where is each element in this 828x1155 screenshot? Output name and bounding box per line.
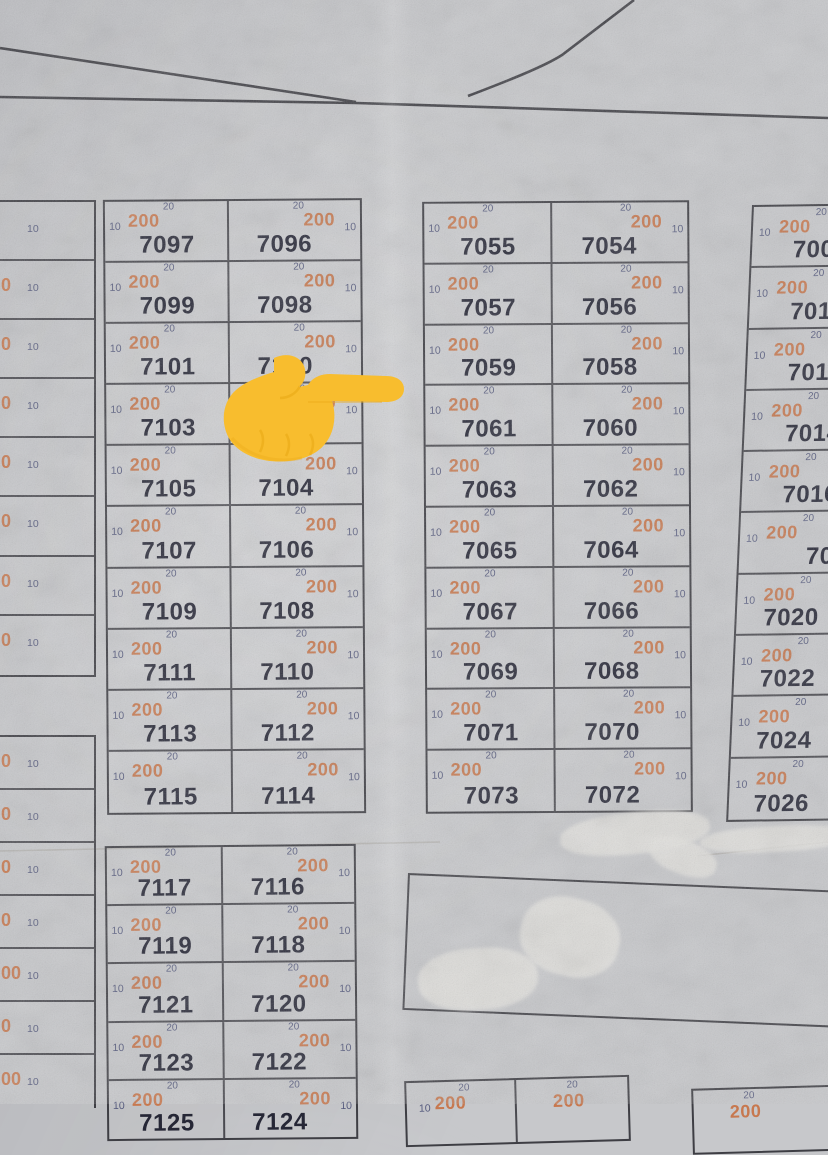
- frontage-label: 10: [112, 587, 124, 599]
- area-label: 200: [303, 209, 335, 230]
- area-label: 200: [632, 515, 664, 536]
- plot-row: 2020010706920200107068: [427, 628, 690, 690]
- plot-cell: 20200107103: [106, 384, 229, 444]
- frontage-label: 10: [111, 526, 123, 538]
- area-label: 200: [634, 759, 666, 780]
- area-label-partial: 0: [1, 275, 11, 296]
- frontage-label: 10: [429, 405, 441, 417]
- plot-cell: 20200107054: [550, 202, 687, 262]
- plot-number: 7120: [251, 990, 307, 1018]
- depth-label: 20: [622, 567, 633, 578]
- plot-row: 2020010711320200107112: [108, 689, 363, 752]
- plot-cell: 20200107117: [107, 847, 221, 904]
- area-label-partial: 00: [1, 963, 21, 984]
- area-label: 200: [632, 394, 664, 415]
- plot-block-bottom-center-partial: 202001020200: [404, 1075, 631, 1147]
- area-label-partial: 0: [1, 857, 11, 878]
- depth-label: 20: [294, 323, 305, 334]
- plot-number: 7059: [461, 355, 517, 383]
- frontage-label: 10: [27, 917, 39, 929]
- partial-plot-row: 010: [0, 261, 94, 320]
- plot-row: 2020010706120200107060: [425, 385, 688, 447]
- frontage-label: 10: [27, 1023, 39, 1035]
- area-label-partial: 0: [1, 630, 11, 651]
- area-label: 200: [304, 270, 336, 291]
- plot-number: 7065: [462, 537, 518, 565]
- plot-number: 7016: [782, 481, 828, 510]
- plot-row: 2020010705720200107056: [425, 263, 688, 325]
- depth-label: 20: [288, 963, 299, 974]
- plot-row: 2020010710720200107106: [107, 506, 362, 569]
- frontage-label: 10: [746, 533, 758, 545]
- plot-row: 2020010710320200107102: [106, 383, 361, 446]
- plot-block-lower-left: 2020010711720200107116202001071192020010…: [105, 844, 359, 1141]
- frontage-label: 10: [112, 983, 124, 995]
- frontage-label: 10: [27, 400, 39, 412]
- area-label: 200: [132, 1089, 164, 1110]
- frontage-label: 10: [743, 594, 755, 606]
- plot-row: 20200107016: [741, 450, 828, 513]
- frontage-label: 10: [428, 223, 440, 235]
- frontage-label: 10: [672, 345, 684, 357]
- plot-row: 20200107018: [738, 512, 828, 575]
- paper-tear: [699, 822, 828, 856]
- area-label: 200: [131, 699, 163, 720]
- area-label: 200: [129, 394, 161, 415]
- frontage-label: 10: [753, 349, 765, 361]
- frontage-label: 10: [27, 637, 39, 649]
- frontage-label: 10: [348, 710, 360, 722]
- partial-plot-row: 010: [0, 843, 94, 896]
- area-label-partial: 00: [1, 1069, 21, 1090]
- plot-number: 7018: [805, 542, 828, 571]
- area-label-partial: 0: [1, 1016, 11, 1037]
- area-label: 200: [766, 523, 798, 544]
- plat-map-photo: 10010010010010010010010 0100100100100010…: [0, 0, 828, 1104]
- plot-cell: 20200107106: [229, 506, 362, 566]
- plot-cell: 20200107020: [736, 573, 828, 634]
- area-label: 200: [634, 698, 666, 719]
- frontage-label: 10: [345, 282, 357, 294]
- frontage-label: 10: [111, 465, 123, 477]
- plot-strip-left-lower: 01001001001000100100010: [0, 735, 96, 1108]
- plot-row: 2020010711520200107114: [109, 750, 364, 813]
- frontage-label: 10: [110, 343, 122, 355]
- plot-cell: 20200107114: [231, 750, 364, 812]
- depth-label: 20: [294, 445, 305, 456]
- plot-cell: 20200107116: [220, 846, 354, 903]
- depth-label: 20: [297, 750, 308, 761]
- area-label: 200: [776, 277, 808, 298]
- plot-cell: 20200107098: [228, 261, 361, 321]
- frontage-label: 10: [111, 925, 123, 937]
- plot-row: 2020010707120200107070: [427, 689, 690, 751]
- plot-number: 7099: [140, 292, 196, 320]
- plot-number: 7071: [463, 719, 519, 747]
- plot-cell: 20200107018: [739, 512, 828, 573]
- plot-cell: 20200107026: [728, 757, 828, 820]
- frontage-label: 10: [674, 649, 686, 661]
- partial-plot-row: 010: [0, 557, 94, 616]
- plot-number: 7116: [251, 874, 305, 902]
- frontage-label: 10: [672, 223, 684, 235]
- depth-label: 20: [482, 203, 493, 214]
- area-label: 200: [128, 211, 160, 232]
- plot-cell: 20200107115: [109, 751, 232, 813]
- frontage-label: 10: [741, 656, 753, 668]
- depth-label: 20: [293, 201, 304, 212]
- depth-label: 20: [623, 689, 634, 700]
- depth-label: 20: [166, 690, 177, 701]
- plot-cell: 20200107069: [427, 629, 554, 689]
- frontage-label: 10: [429, 284, 441, 296]
- road-line-horizontal: [0, 97, 828, 118]
- plot-number: 7124: [252, 1108, 308, 1136]
- plot-number: 7060: [583, 415, 639, 443]
- frontage-label: 10: [430, 587, 442, 599]
- plot-cell: 20200107100: [228, 322, 361, 382]
- depth-label: 20: [485, 690, 496, 701]
- depth-label: 20: [483, 325, 494, 336]
- area-label: 200: [131, 638, 163, 659]
- plot-row: 2020010709720200107096: [105, 200, 360, 263]
- plot-cell: 20200107062: [552, 445, 689, 505]
- plot-number: 7109: [142, 598, 198, 626]
- plot-number: 7110: [260, 658, 314, 686]
- area-label: 200: [304, 331, 336, 352]
- plot-cell: 20200107012: [746, 328, 828, 389]
- plot-strip-left-upper: 10010010010010010010010: [0, 200, 96, 677]
- frontage-label: 10: [675, 710, 687, 722]
- frontage-label: 10: [348, 771, 360, 783]
- depth-label: 20: [484, 568, 495, 579]
- plot-number: 7022: [759, 665, 816, 694]
- plot-number: 7024: [756, 726, 813, 755]
- frontage-label: 10: [340, 1100, 352, 1112]
- frontage-label: 10: [110, 404, 122, 416]
- area-label: 200: [307, 698, 339, 719]
- depth-label: 20: [810, 330, 822, 341]
- depth-label: 20: [287, 846, 298, 857]
- plot-number: 7114: [261, 782, 315, 810]
- area-label: 200: [434, 1092, 466, 1114]
- depth-label: 20: [165, 847, 176, 858]
- plot-cell: 20200107056: [551, 263, 688, 323]
- depth-label: 20: [167, 751, 178, 762]
- plot-cell: 20200107067: [426, 568, 553, 628]
- plot-row: 20200107008: [751, 205, 828, 268]
- plot-cell: 20200107097: [105, 201, 228, 261]
- plot-number: 7061: [461, 415, 517, 443]
- plot-cell: 20200107123: [108, 1022, 222, 1079]
- plot-number: 7070: [584, 719, 640, 747]
- plot-number: 7062: [583, 475, 639, 503]
- frontage-label: 10: [27, 282, 39, 294]
- plot-number: 7072: [585, 781, 641, 809]
- depth-label: 20: [808, 391, 820, 402]
- area-label: 200: [449, 577, 481, 598]
- depth-label: 20: [294, 384, 305, 395]
- plot-cell: 20200107010: [749, 266, 828, 327]
- plot-row: 2020010706520200107064: [426, 506, 689, 568]
- depth-label: 20: [295, 506, 306, 517]
- plot-row: 2020010710120200107100: [106, 322, 361, 385]
- plot-row: 2020010712320200107122: [108, 1020, 355, 1080]
- plot-number: 7111: [143, 659, 196, 687]
- plot-number: 7073: [464, 782, 520, 810]
- plot-cell: 2020010: [406, 1080, 516, 1145]
- plot-block-right-edge: 2020010700820200107010202001070122020010…: [726, 203, 828, 822]
- depth-label: 20: [163, 263, 174, 274]
- frontage-label: 10: [27, 970, 39, 982]
- frontage-label: 10: [338, 867, 350, 879]
- frontage-label: 10: [112, 710, 124, 722]
- plot-number: 7105: [141, 476, 197, 504]
- depth-label: 20: [797, 636, 809, 647]
- frontage-label: 10: [339, 983, 351, 995]
- depth-label: 20: [484, 447, 495, 458]
- plot-row: 2020010710520200107104: [107, 444, 362, 507]
- depth-label: 20: [165, 446, 176, 457]
- plot-cell: 20200107124: [222, 1079, 356, 1138]
- depth-label: 20: [621, 385, 632, 396]
- frontage-label: 10: [27, 223, 39, 235]
- depth-label: 20: [620, 203, 631, 214]
- frontage-label: 10: [419, 1102, 431, 1114]
- area-label: 200: [450, 699, 482, 720]
- plot-row: 2020010707320200107072: [427, 749, 690, 811]
- plot-number: 7125: [139, 1109, 195, 1137]
- plot-row: 20200107014: [744, 389, 828, 452]
- plot-cell: 20200107014: [744, 389, 828, 450]
- frontage-label: 10: [27, 811, 39, 823]
- plot-block-left: 2020010709720200107096202001070992020010…: [103, 198, 366, 815]
- plot-number: 7010: [790, 297, 828, 326]
- area-label: 200: [773, 339, 805, 360]
- depth-label: 20: [289, 1079, 300, 1090]
- partial-plot-row: 010: [0, 790, 94, 843]
- plot-cell: 20200107109: [107, 568, 230, 628]
- area-label: 200: [130, 577, 162, 598]
- plot-number: 7012: [787, 359, 828, 388]
- frontage-label: 10: [675, 770, 687, 782]
- frontage-label: 10: [431, 709, 443, 721]
- plot-cell: 20200: [693, 1088, 789, 1153]
- plot-number: 7118: [251, 932, 305, 960]
- depth-label: 20: [164, 324, 175, 335]
- depth-label: 20: [803, 513, 815, 524]
- plot-cell: 20200107102: [229, 383, 362, 443]
- plot-row: 2020010711720200107116: [107, 846, 354, 906]
- partial-plot-row: 10: [0, 202, 94, 261]
- area-label-partial: 0: [1, 511, 11, 532]
- plot-block-center: 2020010705520200107054202001070572020010…: [422, 200, 693, 814]
- plot-cell: 20200: [514, 1077, 628, 1142]
- frontage-label: 10: [346, 527, 358, 539]
- partial-plot-row: 010: [0, 497, 94, 556]
- plot-cell: 20200107055: [424, 203, 551, 263]
- area-label: 200: [632, 455, 664, 476]
- plot-block-bottom-right-partial: 20200: [691, 1083, 828, 1155]
- plot-cell: 20200107065: [426, 507, 553, 567]
- depth-label: 20: [166, 629, 177, 640]
- plot-number: 7101: [140, 354, 196, 382]
- depth-label: 20: [483, 386, 494, 397]
- depth-label: 20: [743, 1090, 754, 1101]
- plot-row: 2020010711920200107118: [107, 904, 354, 964]
- depth-label: 20: [566, 1079, 571, 1090]
- plot-cell: 20200107096: [227, 200, 360, 260]
- plot-cell: 20200107063: [426, 446, 553, 506]
- area-label: 200: [449, 516, 481, 537]
- area-label-partial: 0: [1, 910, 11, 931]
- frontage-label: 10: [111, 867, 123, 879]
- plot-number: 7106: [259, 536, 315, 564]
- frontage-label: 10: [429, 344, 441, 356]
- depth-label: 20: [623, 628, 634, 639]
- depth-label: 20: [295, 567, 306, 578]
- area-label: 200: [305, 393, 337, 414]
- depth-label: 20: [622, 507, 633, 518]
- partial-plot-row: 0010: [0, 949, 94, 1002]
- depth-label: 20: [485, 629, 496, 640]
- partial-plot-row: 010: [0, 737, 94, 790]
- partial-plot-row: 010: [0, 616, 94, 675]
- area-label: 200: [451, 760, 483, 781]
- plot-cell: 20200107120: [221, 962, 355, 1019]
- depth-label: 20: [623, 750, 634, 761]
- plot-cell: 20200107104: [229, 444, 362, 504]
- plot-row: 202001020200: [406, 1077, 629, 1145]
- frontage-label: 10: [735, 778, 747, 790]
- plot-cell: 20200107073: [427, 750, 554, 812]
- plot-number: 7058: [582, 354, 638, 382]
- plot-cell: 20200107022: [733, 634, 828, 695]
- area-label: 200: [130, 516, 162, 537]
- plot-cell: 20200107060: [551, 385, 688, 445]
- plot-number: 7097: [139, 231, 195, 259]
- depth-label: 20: [167, 1080, 178, 1091]
- frontage-label: 10: [346, 404, 358, 416]
- area-label: 200: [448, 334, 480, 355]
- depth-label: 20: [813, 268, 825, 279]
- area-label: 200: [771, 400, 803, 421]
- area-label: 200: [633, 576, 665, 597]
- plot-number: 7117: [138, 875, 192, 903]
- depth-label: 20: [296, 628, 307, 639]
- plot-number: 7020: [763, 604, 820, 633]
- depth-label: 20: [483, 264, 494, 275]
- plot-row: 2020010711120200107110: [108, 628, 363, 691]
- frontage-label: 10: [113, 771, 125, 783]
- plot-number: 7026: [753, 790, 810, 819]
- frontage-label: 10: [27, 1076, 39, 1088]
- plot-cell: 20200107099: [105, 262, 228, 322]
- plot-row: 2020010705520200107054: [424, 202, 687, 264]
- frontage-label: 10: [112, 1042, 124, 1054]
- frontage-label: 10: [109, 282, 121, 294]
- frontage-label: 10: [673, 527, 685, 539]
- area-label-partial: 0: [1, 751, 11, 772]
- plot-number: 7008: [792, 236, 828, 265]
- area-label: 200: [130, 455, 162, 476]
- area-label-partial: 0: [1, 393, 11, 414]
- plot-cell: 20200107024: [731, 695, 828, 756]
- depth-label: 20: [484, 507, 495, 518]
- frontage-label: 10: [339, 925, 351, 937]
- plot-row: 2020010709920200107098: [105, 261, 360, 324]
- area-label: 200: [129, 333, 161, 354]
- frontage-label: 10: [27, 758, 39, 770]
- plot-row: 2020010705920200107058: [425, 324, 688, 386]
- plot-cell: 20200107105: [107, 445, 230, 505]
- partial-plot-row: 010: [0, 379, 94, 438]
- depth-label: 20: [795, 697, 807, 708]
- depth-label: 20: [621, 446, 632, 457]
- plot-cell: 20200107066: [553, 567, 690, 627]
- frontage-label: 10: [347, 588, 359, 600]
- area-label: 200: [447, 212, 479, 233]
- plot-cell: 20200107110: [230, 628, 363, 688]
- depth-label: 20: [166, 1022, 177, 1033]
- area-label: 200: [553, 1090, 603, 1112]
- depth-label: 20: [165, 568, 176, 579]
- plot-cell: 20200107068: [553, 628, 690, 688]
- plot-number: 7066: [584, 597, 640, 625]
- plot-cell: 20200107071: [427, 689, 554, 749]
- depth-label: 20: [288, 1021, 299, 1032]
- area-label: 200: [631, 211, 663, 232]
- plot-number: 7115: [144, 783, 198, 811]
- plot-cell: 20200107121: [108, 963, 222, 1020]
- plot-row: 2020010712120200107120: [108, 962, 355, 1022]
- area-label: 200: [755, 768, 787, 789]
- plot-number: 7068: [584, 658, 640, 686]
- frontage-label: 10: [748, 472, 760, 484]
- plot-row: 2020010712520200107124: [109, 1079, 356, 1139]
- plot-row: 20200107026: [728, 757, 828, 820]
- plot-cell: 20200107107: [107, 507, 230, 567]
- plot-cell: 20200107101: [106, 323, 229, 383]
- plot-cell: 20200107112: [231, 689, 364, 749]
- road-line-left-diagonal: [0, 48, 356, 102]
- frontage-label: 10: [759, 227, 771, 239]
- plot-number: 7102: [258, 414, 314, 442]
- area-label: 200: [758, 706, 790, 727]
- plot-row: 2020010706720200107066: [426, 567, 689, 629]
- partial-plot-row: 010: [0, 438, 94, 497]
- frontage-label: 10: [346, 466, 358, 478]
- depth-label: 20: [800, 575, 812, 586]
- frontage-label: 10: [673, 466, 685, 478]
- partial-plot-row: 010: [0, 896, 94, 949]
- area-label: 200: [763, 584, 795, 605]
- partial-plot-row: 010: [0, 1002, 94, 1055]
- plot-row: 20200107022: [733, 634, 828, 697]
- frontage-label: 10: [756, 288, 768, 300]
- area-label: 200: [729, 1101, 761, 1123]
- frontage-label: 10: [345, 343, 357, 355]
- frontage-label: 10: [673, 406, 685, 418]
- plot-number: 7096: [257, 231, 313, 259]
- frontage-label: 10: [27, 578, 39, 590]
- plot-number: 7107: [141, 537, 197, 565]
- frontage-label: 10: [113, 1100, 125, 1112]
- area-label: 200: [306, 637, 338, 658]
- frontage-label: 10: [27, 459, 39, 471]
- road-line-right-diagonal: [468, 0, 634, 96]
- plot-cell: 20200107061: [425, 385, 552, 445]
